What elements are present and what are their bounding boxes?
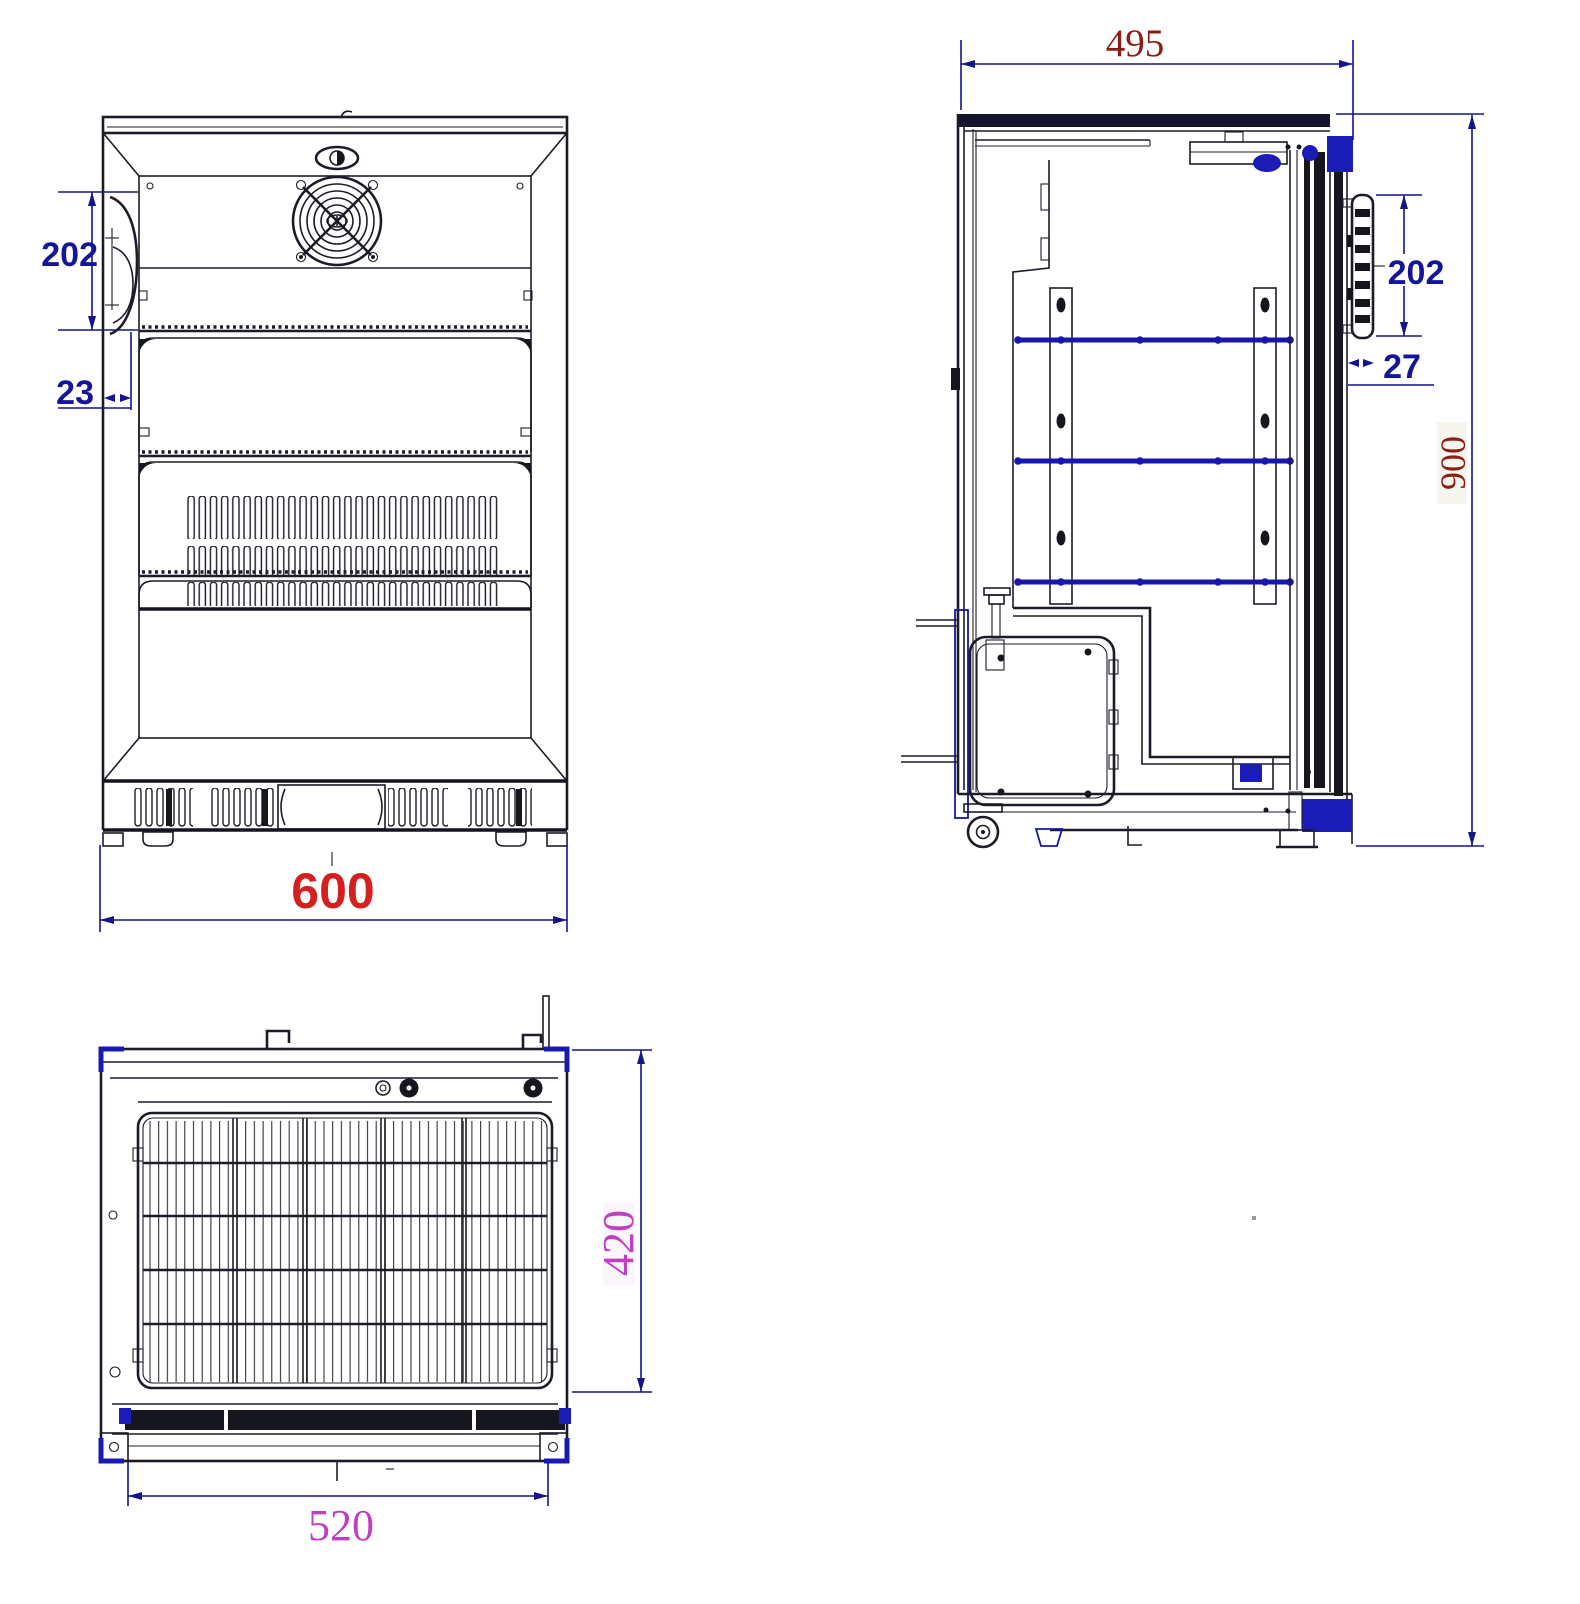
image-speck bbox=[1252, 1216, 1256, 1220]
compressor-box bbox=[970, 637, 1118, 805]
side-handle-depth-label: 27 bbox=[1383, 348, 1421, 386]
base-vent-group1 bbox=[133, 788, 193, 828]
front-width-label: 600 bbox=[291, 863, 374, 919]
dim-top-width: 520 bbox=[128, 1462, 548, 1550]
side-depth-label: 495 bbox=[1106, 22, 1165, 65]
top-width-label: 520 bbox=[308, 1501, 374, 1550]
hinge-hook-left bbox=[267, 1031, 289, 1049]
base-vent-group3 bbox=[388, 788, 448, 828]
hinge-hook-right bbox=[523, 1035, 541, 1049]
dim-front-handle-offset: 23 bbox=[56, 332, 131, 412]
left-knurled-foot bbox=[103, 833, 123, 846]
top-view bbox=[101, 996, 571, 1481]
side-handle-height-label: 202 bbox=[1388, 254, 1445, 292]
front-rail-bar bbox=[125, 1410, 565, 1430]
door-handle-front bbox=[105, 197, 137, 334]
technical-drawing-page: 202 23 600 bbox=[0, 0, 1580, 1604]
evaporator-vent-slots-row1 bbox=[186, 496, 500, 539]
side-view bbox=[901, 114, 1385, 847]
dim-top-depth: 420 bbox=[572, 1050, 652, 1392]
front-handle-offset-label: 23 bbox=[56, 374, 94, 412]
dim-front-width: 600 bbox=[100, 845, 567, 932]
dim-side-height: 900 bbox=[1336, 114, 1484, 846]
evaporator-vent-slots-row3 bbox=[186, 582, 500, 606]
shelf-rail-left bbox=[1050, 288, 1072, 604]
foot-thread bbox=[1289, 792, 1302, 830]
dim-front-handle-height: 202 bbox=[41, 192, 138, 330]
fan-icon bbox=[293, 177, 381, 265]
caster-wheel bbox=[964, 804, 1002, 847]
hinge-bushing bbox=[1253, 154, 1281, 172]
glass-door-section bbox=[1290, 140, 1347, 800]
top-hinge bbox=[1327, 136, 1353, 172]
shelf-rail-right bbox=[1254, 288, 1276, 604]
dim-side-handle-height: 202 bbox=[1376, 195, 1444, 336]
side-height-label: 900 bbox=[1433, 436, 1473, 490]
lock-icon bbox=[316, 147, 358, 169]
fridge-three-view-drawing: 202 23 600 bbox=[0, 0, 1580, 1604]
right-knurled-foot bbox=[547, 833, 567, 846]
base-vent-group4 bbox=[468, 788, 532, 828]
base-center-panel bbox=[278, 785, 385, 829]
adjustable-foot bbox=[1280, 830, 1314, 847]
compressor-mount-bolt bbox=[984, 588, 1010, 670]
front-view bbox=[103, 111, 567, 846]
top-depth-label: 420 bbox=[594, 1210, 643, 1276]
front-handle-height-label: 202 bbox=[41, 236, 98, 274]
door-handle-side bbox=[1343, 195, 1385, 338]
condenser-grille bbox=[138, 1113, 552, 1388]
dim-side-handle-depth: 27 bbox=[1348, 348, 1434, 386]
bottom-hinge-box bbox=[1302, 799, 1352, 832]
hinge-pin bbox=[543, 996, 549, 1049]
